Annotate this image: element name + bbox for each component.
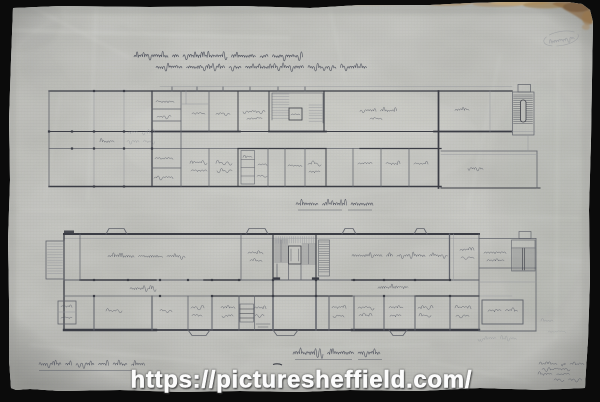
svg-text:https://picturesheffield.com/: https://picturesheffield.com/ <box>131 367 472 394</box>
